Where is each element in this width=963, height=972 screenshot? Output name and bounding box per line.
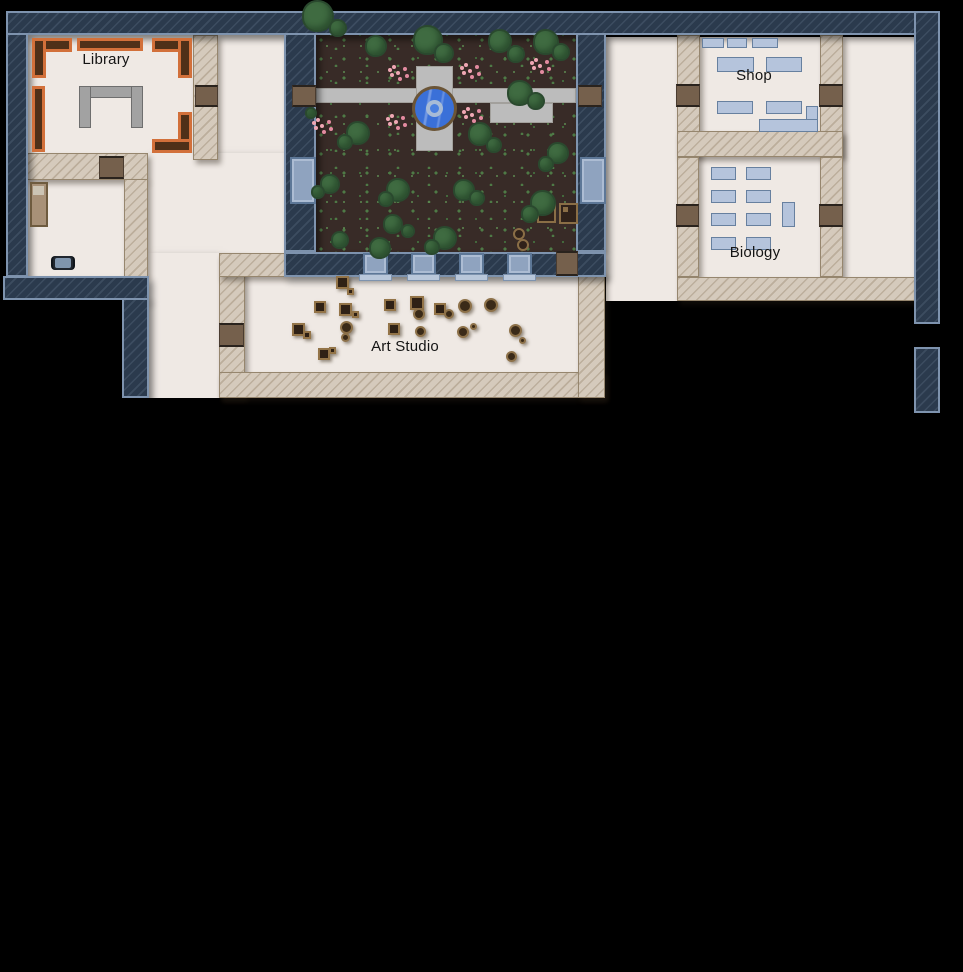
tree [305,107,317,119]
easel [347,288,354,295]
floor [699,37,820,132]
window [411,253,436,275]
exterior-wall [6,33,28,277]
flower [532,66,536,70]
door [819,84,843,107]
flower [472,119,476,123]
tree [469,190,485,206]
biology-desk [711,190,736,203]
tree [521,205,539,223]
flower [396,126,400,130]
flower [464,63,468,67]
flower [468,69,472,73]
door [676,84,700,107]
exterior-wall [576,33,606,252]
shop-table [752,38,778,48]
flower [538,64,542,68]
flower [477,109,481,113]
floorplan-map: Library Shop Biology Art Studio [0,0,963,972]
biology-desk [711,167,736,180]
door [556,251,578,276]
tree [311,185,325,199]
flower [320,124,324,128]
flower [460,66,464,70]
shop-table [727,38,747,48]
door [219,323,244,347]
flower [475,65,479,69]
interior-wall [677,277,917,301]
tree [486,137,502,153]
floor [148,153,284,253]
door [819,204,843,227]
window [507,253,532,275]
easel [388,323,400,335]
stool [519,337,526,344]
tree [369,237,391,259]
flower [477,72,481,76]
easel [303,331,311,339]
stool [413,308,425,320]
exterior-wall [122,298,149,398]
door [99,156,124,179]
shop-table [806,106,818,120]
window-sill [407,274,440,281]
flower [401,116,405,120]
shop-table [702,38,724,48]
interior-wall [26,153,148,180]
flower [322,130,326,134]
bookshelf [152,139,192,153]
floor [606,37,677,301]
crate [559,203,578,224]
room-label-biology: Biology [705,244,805,261]
biology-desk [746,213,771,226]
flower [462,110,466,114]
interior-wall [219,253,286,277]
bookshelf [178,38,192,78]
fountain [412,86,457,131]
tree [378,191,394,207]
interior-wall [578,273,605,398]
flower [396,71,400,75]
flower [547,67,551,71]
tree [424,239,440,255]
fountain-water [415,89,454,128]
stool [470,323,477,330]
easel [352,311,359,318]
shop-table [717,101,753,114]
flower [392,65,396,69]
library-desk [79,86,91,128]
stool [340,321,353,334]
interior-wall [219,372,605,398]
flower [398,77,402,81]
flower [329,127,333,131]
biology-desk [746,190,771,203]
tree [507,45,525,63]
window-sill [455,274,488,281]
room-label-art-studio: Art Studio [345,338,465,355]
stool [506,351,517,362]
interior-wall [677,131,843,157]
exterior-wall [3,276,149,300]
easel [314,301,326,313]
stool [484,298,498,312]
window-sill [359,274,392,281]
tree [383,214,403,234]
flower [403,67,407,71]
biology-desk [711,213,736,226]
window [580,157,606,204]
flower [479,116,483,120]
window [459,253,484,275]
bookshelf [32,38,46,78]
tree [538,156,554,172]
flower [466,107,470,111]
pot [517,239,529,251]
flower [403,123,407,127]
flower [386,117,390,121]
shop-table [766,101,802,114]
tree [434,43,454,63]
stool [457,326,469,338]
biology-desk [782,202,795,227]
flower [327,120,331,124]
flower [390,114,394,118]
fountain-center [426,100,443,117]
flower [405,74,409,78]
door [578,85,602,107]
flower [464,115,468,119]
exterior-wall [6,11,940,35]
stool [509,324,522,337]
easel [339,303,352,316]
tree [329,19,347,37]
floor [843,37,914,277]
door [676,204,699,227]
stool [444,309,454,319]
room-label-shop: Shop [714,67,794,84]
flower [388,68,392,72]
easel [384,299,396,311]
door [292,85,316,107]
flower [312,121,316,125]
flower [470,113,474,117]
tree [365,35,387,57]
stool [415,326,426,337]
flower [534,58,538,62]
bed [30,182,48,227]
biology-desk [746,167,771,180]
shop-table [759,119,818,132]
flower [540,70,544,74]
room-label-library: Library [46,51,166,68]
flower [394,120,398,124]
tree [552,43,570,61]
bookshelf [32,86,45,152]
tree [527,92,545,110]
floor [148,253,219,398]
tree [331,231,349,249]
tree [401,224,415,238]
flower [316,118,320,122]
cart [53,256,73,270]
exterior-wall [284,33,316,252]
window-sill [503,274,536,281]
stool [458,299,472,313]
flower [390,73,394,77]
door [195,85,218,107]
exterior-wall [914,347,940,413]
tree [337,134,353,150]
interior-wall [124,179,148,277]
exterior-wall [914,11,940,324]
flower [314,126,318,130]
flower [470,75,474,79]
flower [388,122,392,126]
library-desk [131,86,143,128]
flower [545,60,549,64]
easel [329,347,336,354]
flower [462,71,466,75]
bookshelf [77,38,143,51]
flower [530,61,534,65]
